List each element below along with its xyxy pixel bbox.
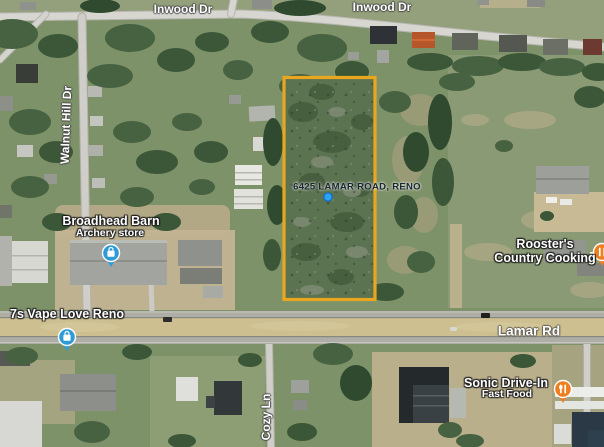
vehicle [481, 313, 490, 318]
road-label-inwood-dr-right: Inwood Dr [353, 0, 412, 14]
place-label-broadhead-barn[interactable]: Broadhead Barn [62, 214, 159, 228]
place-label-roosters[interactable]: Rooster's [516, 237, 573, 251]
place-label-7s-vape-love-reno[interactable]: 7s Vape Love Reno [10, 307, 124, 321]
house [214, 381, 242, 415]
parcel-address-label: 6425 LAMAR ROAD, RENO [293, 182, 421, 193]
road-label-lamar-rd: Lamar Rd [498, 324, 560, 339]
house [370, 26, 397, 44]
satellite-map[interactable]: Inwood Dr Inwood Dr Walnut Hill Dr Lamar… [0, 0, 604, 447]
location-dot-icon [324, 193, 332, 201]
road-label-inwood-dr-left: Inwood Dr [154, 2, 213, 16]
place-sublabel-fast-food: Fast Food [482, 388, 532, 400]
road-label-walnut-hill-dr: Walnut Hill Dr [58, 86, 75, 165]
place-sublabel-archery-store: Archery store [76, 227, 144, 239]
vehicle [163, 317, 172, 322]
house [543, 39, 568, 55]
house [499, 35, 527, 52]
road-label-cozy-ln: Cozy Ln [259, 394, 273, 441]
place-label-country-cooking[interactable]: Country Cooking [494, 251, 595, 265]
house [452, 33, 478, 50]
house [583, 39, 602, 55]
house [16, 64, 38, 83]
vehicle [450, 327, 457, 331]
